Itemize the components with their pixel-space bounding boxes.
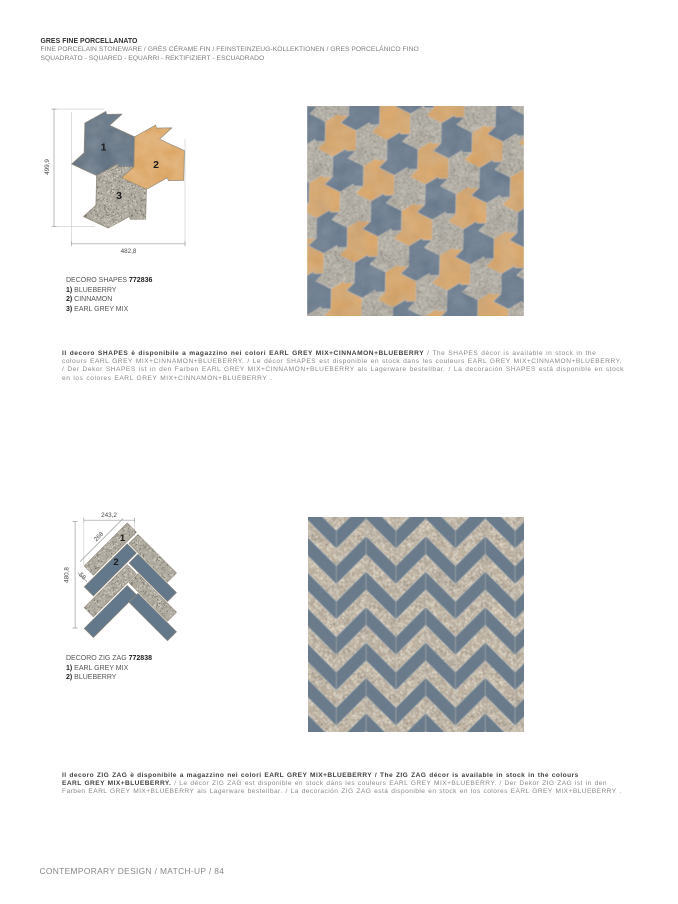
svg-text:2: 2	[113, 557, 118, 568]
svg-text:480,8: 480,8	[64, 567, 71, 583]
svg-text:1: 1	[120, 533, 126, 544]
svg-text:2: 2	[153, 159, 159, 171]
svg-text:499,9: 499,9	[44, 159, 51, 175]
svg-text:482,8: 482,8	[121, 248, 137, 255]
svg-text:3: 3	[116, 190, 122, 202]
svg-text:1: 1	[101, 142, 107, 154]
svg-text:268: 268	[93, 530, 106, 543]
svg-text:243,2: 243,2	[101, 512, 117, 519]
